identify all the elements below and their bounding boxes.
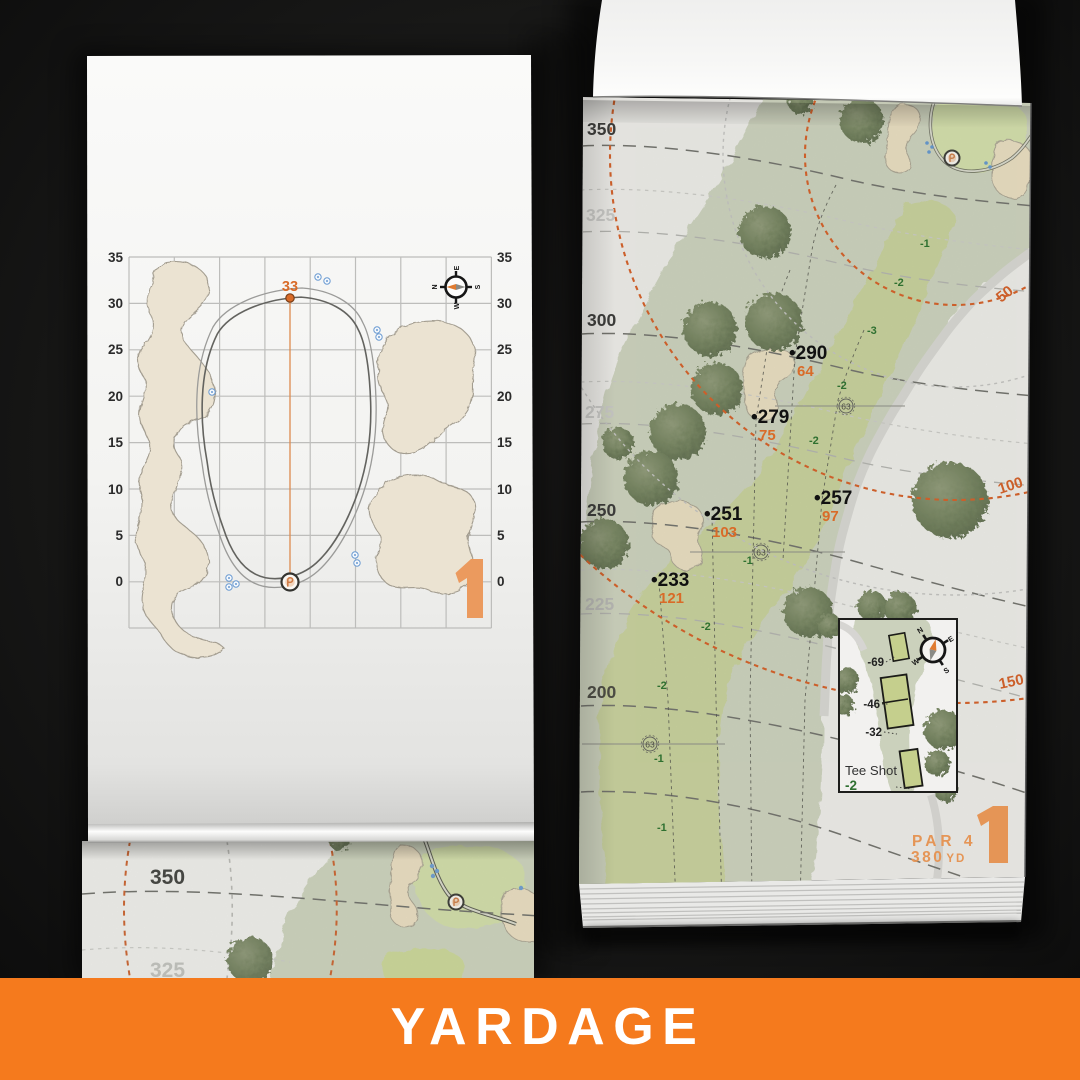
svg-text:0: 0 xyxy=(497,574,505,589)
svg-text:25: 25 xyxy=(108,342,124,357)
svg-text:YARDAGE: YARDAGE xyxy=(391,998,706,1056)
svg-text:-2: -2 xyxy=(894,277,904,289)
svg-text:•257: •257 xyxy=(814,488,852,509)
svg-text:W: W xyxy=(454,302,461,309)
svg-text:-1: -1 xyxy=(657,822,667,834)
svg-text:0: 0 xyxy=(115,574,123,589)
svg-text:5: 5 xyxy=(497,528,505,543)
svg-text:E: E xyxy=(454,265,461,270)
svg-text:10: 10 xyxy=(497,482,512,497)
svg-text:75: 75 xyxy=(759,427,776,444)
svg-text:5: 5 xyxy=(115,528,123,543)
svg-text:-1: -1 xyxy=(654,753,664,765)
svg-text:-2: -2 xyxy=(809,435,819,447)
svg-text:Tee Shot: Tee Shot xyxy=(845,763,897,778)
svg-text:-46: -46 xyxy=(863,699,880,711)
svg-text:15: 15 xyxy=(108,435,124,450)
svg-text:-1: -1 xyxy=(920,238,930,250)
svg-text:25: 25 xyxy=(497,342,513,357)
svg-text:35: 35 xyxy=(108,250,124,265)
svg-text:-2: -2 xyxy=(657,680,667,692)
svg-text:20: 20 xyxy=(497,389,512,404)
svg-text:•290: •290 xyxy=(789,343,827,364)
svg-text:-69: -69 xyxy=(867,657,884,669)
svg-text:121: 121 xyxy=(659,590,684,607)
svg-text:•279: •279 xyxy=(751,407,789,428)
svg-text:10: 10 xyxy=(108,482,123,497)
svg-text:N: N xyxy=(432,284,439,289)
svg-text:64: 64 xyxy=(797,363,814,380)
svg-text:S: S xyxy=(475,284,482,289)
svg-text:30: 30 xyxy=(497,296,512,311)
svg-text:97: 97 xyxy=(822,508,839,525)
svg-text:33: 33 xyxy=(282,279,298,295)
svg-text:103: 103 xyxy=(712,524,737,541)
svg-text:PAR 4: PAR 4 xyxy=(912,833,977,850)
svg-text:-2: -2 xyxy=(701,621,711,633)
svg-text:•233: •233 xyxy=(651,570,689,591)
svg-text:-2: -2 xyxy=(837,380,847,392)
svg-text:15: 15 xyxy=(497,435,513,450)
svg-text:-3: -3 xyxy=(867,325,877,337)
svg-text:35: 35 xyxy=(497,250,513,265)
svg-text:-32: -32 xyxy=(865,727,882,739)
svg-text:30: 30 xyxy=(108,296,123,311)
svg-text:-1: -1 xyxy=(743,555,753,567)
svg-text:20: 20 xyxy=(108,389,123,404)
svg-text:•251: •251 xyxy=(704,504,743,525)
svg-text:-2: -2 xyxy=(845,778,857,793)
